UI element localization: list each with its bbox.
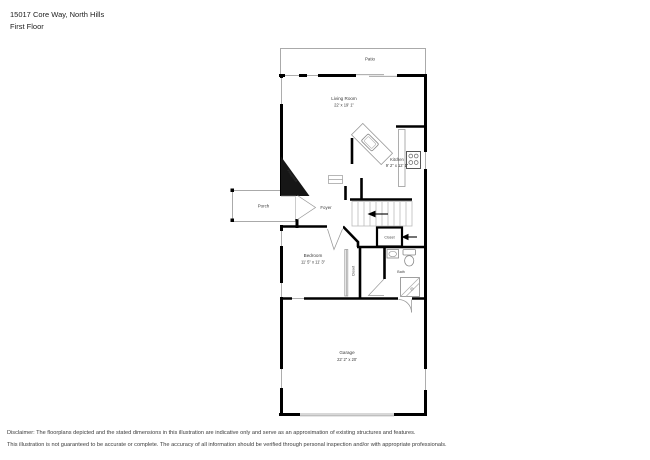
disclaimer-line-2: This illustration is not guaranteed to b… bbox=[7, 442, 447, 449]
bedroom-closet-label: Closet bbox=[352, 266, 356, 276]
toilet-icon bbox=[403, 250, 416, 267]
floorplan-drawing: Patio Living Room 22' x 19' 1" Kitchen 9… bbox=[0, 0, 650, 460]
bath-sink-icon bbox=[387, 250, 399, 259]
porch-corner-post bbox=[231, 219, 235, 223]
floorplan-page: 15017 Core Way, North Hills First Floor bbox=[0, 0, 650, 460]
living-room-label: Living Room bbox=[331, 96, 357, 101]
stove-icon bbox=[407, 152, 421, 169]
bedroom-dims: 11' 5" x 11' 3" bbox=[301, 260, 326, 265]
foyer-console bbox=[329, 176, 343, 184]
kitchen-fixtures bbox=[351, 123, 420, 186]
staircase bbox=[352, 202, 412, 227]
front-door-swing bbox=[298, 196, 316, 220]
disclaimer-line-1: Disclaimer: The floorplans depicted and … bbox=[7, 430, 415, 437]
kitchen-dims: 9' 2" x 12' 1" bbox=[386, 163, 409, 168]
bath-door-swing bbox=[369, 279, 385, 296]
porch-label: Porch bbox=[258, 204, 270, 209]
stair-direction-arrow-icon bbox=[368, 211, 389, 218]
bedroom-door-swing bbox=[328, 229, 343, 250]
foyer-label: Foyer bbox=[320, 205, 332, 210]
shower-icon bbox=[401, 278, 420, 297]
door-opening bbox=[327, 225, 343, 228]
garage-dims: 22' 2" x 20' bbox=[337, 357, 357, 362]
porch-corner-post bbox=[231, 189, 235, 193]
patio-outline bbox=[281, 49, 426, 76]
door-opening bbox=[296, 196, 299, 219]
living-room-dims: 22' x 19' 1" bbox=[334, 103, 354, 108]
stair-closet-label: Closet bbox=[384, 236, 394, 240]
stair-closet bbox=[377, 228, 417, 247]
patio-label: Patio bbox=[365, 57, 376, 62]
bedroom-label: Bedroom bbox=[304, 253, 323, 258]
garage-entry-door-swing bbox=[399, 300, 412, 313]
closet-direction-arrow-icon bbox=[402, 234, 418, 240]
garage-label: Garage bbox=[339, 350, 355, 355]
bath-label: Bath bbox=[397, 270, 404, 274]
kitchen-label: Kitchen bbox=[390, 157, 404, 162]
